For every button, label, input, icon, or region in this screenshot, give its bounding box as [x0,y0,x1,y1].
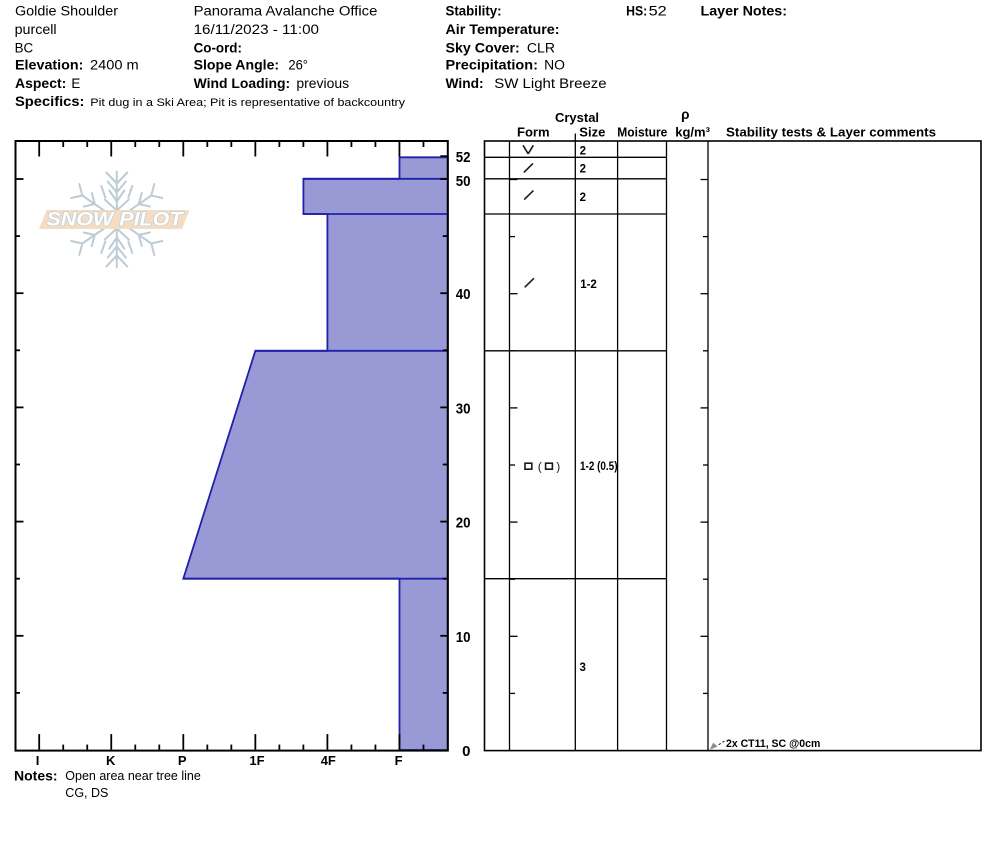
svg-text:(: ( [538,459,542,473]
svg-text:Precipitation:: Precipitation: [446,58,538,73]
svg-text:ρ: ρ [681,107,689,122]
svg-text:52: 52 [456,149,471,166]
svg-text:previous: previous [296,76,349,91]
svg-text:Layer Notes:: Layer Notes: [701,3,788,18]
svg-text:Form: Form [517,125,550,140]
svg-text:Open area near tree line: Open area near tree line [65,769,201,783]
svg-text:Notes:: Notes: [14,768,58,784]
svg-text:1F: 1F [249,753,264,768]
svg-text:2400 m: 2400 m [90,58,139,73]
svg-text:Goldie Shoulder: Goldie Shoulder [15,3,119,18]
svg-text:1-2 (0.5): 1-2 (0.5) [580,461,618,473]
svg-text:40: 40 [456,286,471,303]
svg-text:E: E [71,76,80,91]
svg-text:2: 2 [580,163,586,175]
svg-text:30: 30 [456,400,471,417]
svg-text:kg/m³: kg/m³ [675,125,710,140]
svg-text:Panorama Avalanche Office: Panorama Avalanche Office [194,3,378,18]
svg-text:16/11/2023 - 11:00: 16/11/2023 - 11:00 [194,22,319,37]
svg-text:52: 52 [649,3,667,18]
svg-text:3: 3 [580,662,586,674]
svg-text:I: I [36,753,40,768]
svg-text:SNOW PILOT: SNOW PILOT [47,209,185,231]
svg-text:Aspect:: Aspect: [15,76,66,91]
svg-text:2: 2 [580,146,586,158]
svg-text:NO: NO [544,58,565,73]
svg-text:Pit dug in a Ski Area; Pit is: Pit dug in a Ski Area; Pit is representa… [90,97,405,109]
svg-text:CG, DS: CG, DS [65,786,108,800]
svg-text:2: 2 [580,192,586,204]
svg-text:Moisture: Moisture [617,125,667,140]
svg-text:F: F [395,753,403,768]
svg-text:Elevation:: Elevation: [15,58,83,73]
svg-text:4F: 4F [321,753,336,768]
svg-text:CLR: CLR [527,41,555,56]
svg-text:Wind:: Wind: [446,76,484,91]
svg-text:2x CT11, SC @0cm: 2x CT11, SC @0cm [726,738,821,750]
svg-text:Crystal: Crystal [555,110,599,125]
svg-text:10: 10 [456,629,471,646]
svg-text:1-2: 1-2 [580,279,597,291]
svg-text:Wind Loading:: Wind Loading: [194,76,291,91]
svg-text:Specifics:: Specifics: [15,94,84,109]
svg-text:BC: BC [15,41,34,56]
svg-text:Stability tests & Layer commen: Stability tests & Layer comments [726,125,936,140]
svg-text:P: P [178,753,187,768]
svg-text:Size: Size [579,125,605,140]
svg-text:Sky Cover:: Sky Cover: [446,41,520,56]
svg-text:K: K [106,753,116,768]
svg-text:Slope Angle:: Slope Angle: [194,58,280,73]
svg-text:26°: 26° [288,58,308,73]
svg-text:HS:: HS: [626,3,647,18]
svg-text:SW Light Breeze: SW Light Breeze [494,76,606,91]
svg-text:20: 20 [456,515,471,532]
svg-text:Co-ord:: Co-ord: [194,41,242,56]
svg-text:purcell: purcell [15,22,57,37]
svg-text:Air Temperature:: Air Temperature: [446,22,560,37]
svg-text:50: 50 [456,173,471,190]
svg-text:Stability:: Stability: [446,3,502,18]
svg-text:): ) [556,459,560,473]
svg-text:0: 0 [462,743,470,760]
